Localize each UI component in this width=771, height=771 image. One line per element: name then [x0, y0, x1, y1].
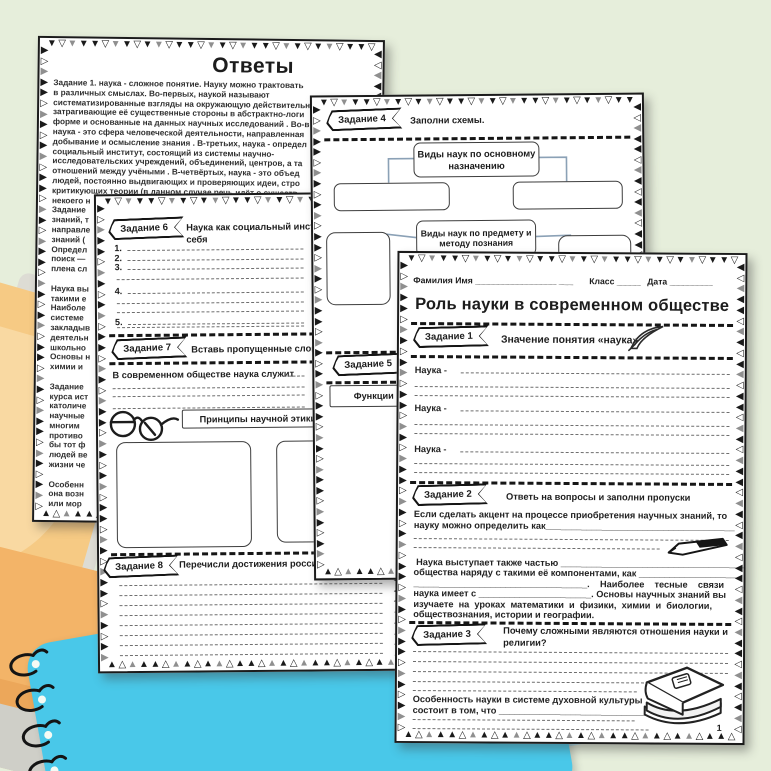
page-main-worksheet: ▼▽▼▼▼▽▼▼▽▼▼▽▼▼▽▼▼▽▼▼▼▽▼▼▽▼▼▽▼▼▽ ▲△▲▲▲△▲▲… [395, 251, 748, 745]
task1-label: Значение понятия «наука» [501, 334, 638, 348]
worksheet-preview-scene: ▼▽▼▼▼▽▼▼▽▼▼▽▼▼▽▼▼▽▼▼▼▽▼▼▽▼▼▽▼▼▽ ▲△▲▲▲△▲▲… [0, 0, 771, 771]
task7-intro: В современном обществе наука служит [112, 369, 294, 381]
scheme1-answer-box-left [334, 182, 450, 211]
task2-paragraph-line: обществознания, истории и географии. [413, 609, 744, 621]
glasses-icon [106, 402, 182, 447]
task6-item-5: 5. [115, 317, 123, 327]
task6-banner: Задание 6 [108, 216, 185, 240]
ethics-title-box: Принципы научной этики [182, 408, 334, 428]
task7-label: Вставь пропущенные слова [191, 343, 322, 356]
nauka-label-2: Наука - [415, 403, 447, 413]
nauka-label-3: Наука - [414, 444, 446, 454]
task1-banner: Задание 1 [413, 325, 489, 348]
task3-banner: Задание 3 [411, 623, 487, 646]
scheme1-title-box: Виды наук по основному назначению [413, 141, 539, 177]
section-separator [411, 355, 733, 360]
scheme2-answer-box-left [326, 232, 391, 306]
triangle-border-top: ▼▽▼▼▼▽▼▼▽▼▼▽▼▼▽▼▼▽▼▼▼▽▼▼▽▼▼▽▼▼▽ [47, 39, 376, 53]
triangle-border-left: ▶▷▶▶▶▷▶▶▷▶▶▷▶▶▷▶▶▷▶▶▶▷▶▶▷▶▶▷▶▶▷▶▶▷▶▶▶▷▶▶… [35, 46, 48, 512]
task2-q1-line1: Если сделать акцент на процессе приобрет… [414, 509, 727, 521]
task6-item-4: 4. [115, 286, 123, 296]
ethics-title: Принципы научной этики [200, 413, 317, 424]
triangle-border-right: ◀◁◀◀◀◁◀◀◁◀◀◁◀◀◁◀◀◁◀◀◀◁◀◀◁◀◀◁◀◀◁◀◀◁◀◀◀◁◀◀… [734, 263, 745, 735]
scheme2-title: Виды наук по предмету и методу познания [417, 227, 535, 249]
ethics-answer-box-1 [116, 441, 252, 548]
task6-item-1: 1. [114, 243, 122, 253]
book-icon [637, 658, 729, 733]
answers-title: Ответы [39, 52, 382, 80]
task2-label: Ответь на вопросы и заполни пропуски [506, 492, 690, 505]
triangle-border-left: ▶▷▶▶▶▷▶▶▷▶▶▷▶▶▷▶▶▷▶▶▶▷▶▶▷▶▶▷▶▶▷▶▶▷▶▶▶▷▶▶… [398, 261, 409, 733]
triangle-border-bottom: ▲△▲▲▲△▲▲△▲▲△▲▲△▲▲△▲▲▲△▲▲△▲▲ [107, 658, 396, 671]
scheme1-title: Виды наук по основному назначению [414, 148, 538, 172]
task2-paragraph: Наука выступает также частью ___________… [413, 557, 745, 621]
task7-banner: Задание 7 [111, 336, 188, 360]
task8-banner: Задание 8 [103, 554, 180, 578]
task2-banner: Задание 2 [412, 483, 488, 506]
worksheet-title: Роль науки в современном обществе [399, 295, 745, 316]
nauka-label-1: Наука - [415, 365, 447, 375]
class-field: Класс _____ [589, 276, 640, 286]
quill-pen-icon [627, 322, 667, 352]
page-number: 1 [717, 723, 722, 733]
spiral-rings [0, 647, 91, 771]
final-note-line2: состоит в том, что _____________________… [413, 705, 663, 717]
task6-item-3: 3. [115, 262, 123, 272]
task3-label: Почему сложными являются отношения науки… [503, 626, 735, 651]
triangle-border-top: ▼▽▼▼▼▽▼▼▽▼▼▽▼▼▽▼▼▽▼▼▼▽▼▼▽▼▼▽▼▼▽ [406, 254, 738, 266]
final-note-line1: Особенность науки в системе духовной кул… [413, 694, 643, 705]
marker-pen-icon [666, 535, 730, 561]
scheme1-answer-box-right [513, 181, 623, 210]
name-field: Фамилия Имя _________________ ___ [413, 275, 573, 286]
date-field: Дата _________ [647, 276, 712, 286]
task2-q1-line2: науку можно определить как______________… [414, 520, 735, 532]
